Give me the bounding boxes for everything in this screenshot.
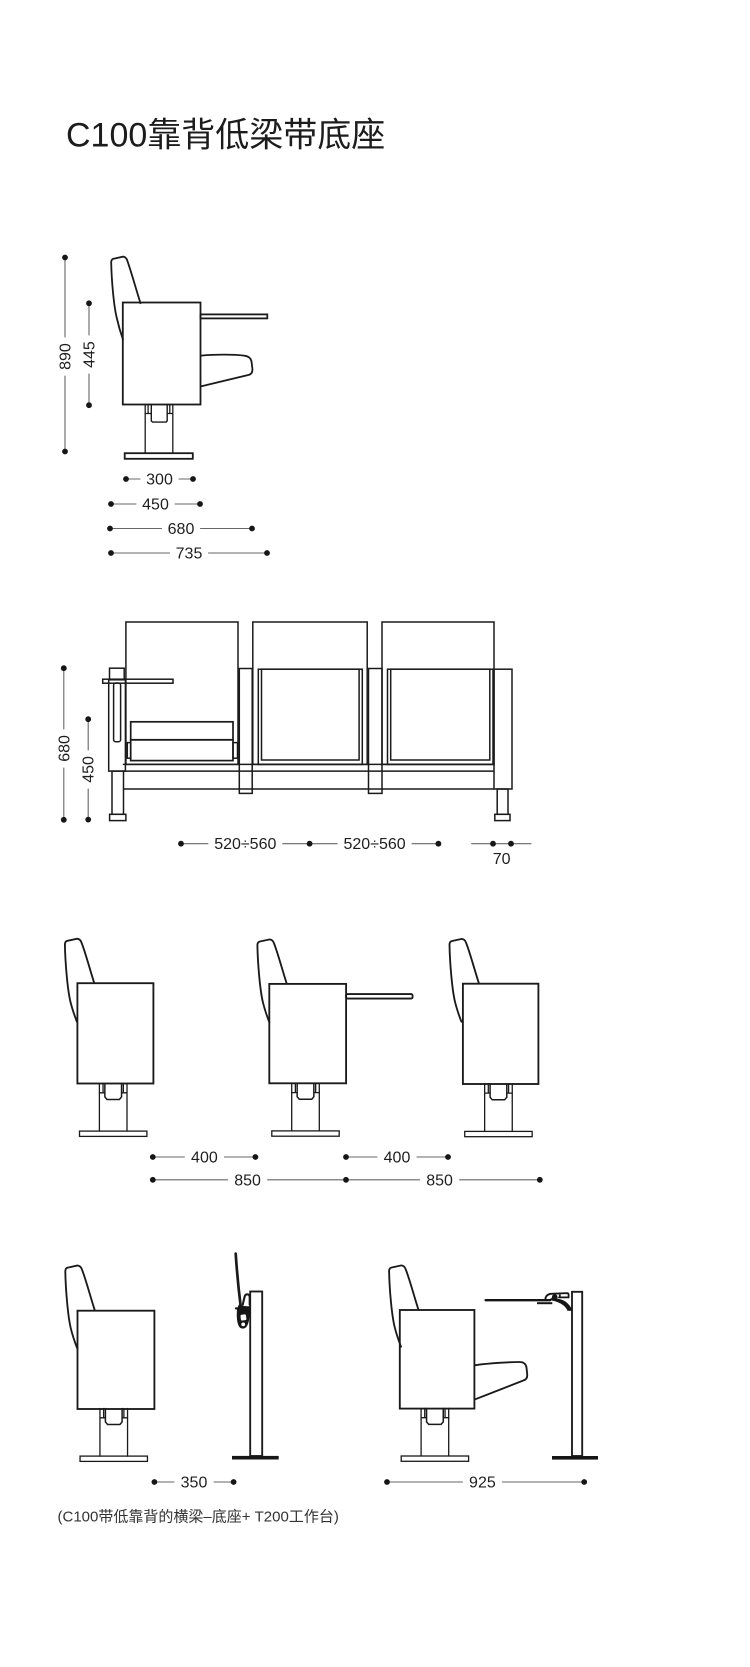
svg-text:735: 735 bbox=[176, 546, 203, 563]
svg-text:850: 850 bbox=[234, 1172, 261, 1189]
svg-text:C100靠背低梁带底座: C100靠背低梁带底座 bbox=[66, 117, 385, 155]
svg-text:70: 70 bbox=[493, 851, 511, 868]
svg-text:400: 400 bbox=[191, 1150, 218, 1167]
svg-text:520÷560: 520÷560 bbox=[344, 836, 406, 853]
svg-text:925: 925 bbox=[469, 1475, 496, 1492]
svg-text:350: 350 bbox=[181, 1475, 208, 1492]
svg-text:850: 850 bbox=[426, 1172, 453, 1189]
svg-text:680: 680 bbox=[168, 521, 195, 538]
svg-text:450: 450 bbox=[142, 497, 169, 514]
svg-text:680: 680 bbox=[56, 735, 73, 762]
svg-text:520÷560: 520÷560 bbox=[214, 836, 276, 853]
svg-text:400: 400 bbox=[384, 1150, 411, 1167]
svg-text:890: 890 bbox=[58, 343, 75, 370]
svg-text:445: 445 bbox=[82, 341, 99, 368]
svg-text:450: 450 bbox=[81, 756, 98, 783]
svg-text:300: 300 bbox=[146, 472, 173, 489]
svg-text:(C100带低靠背的横梁–底座+ T200工作台): (C100带低靠背的横梁–底座+ T200工作台) bbox=[58, 1509, 339, 1526]
